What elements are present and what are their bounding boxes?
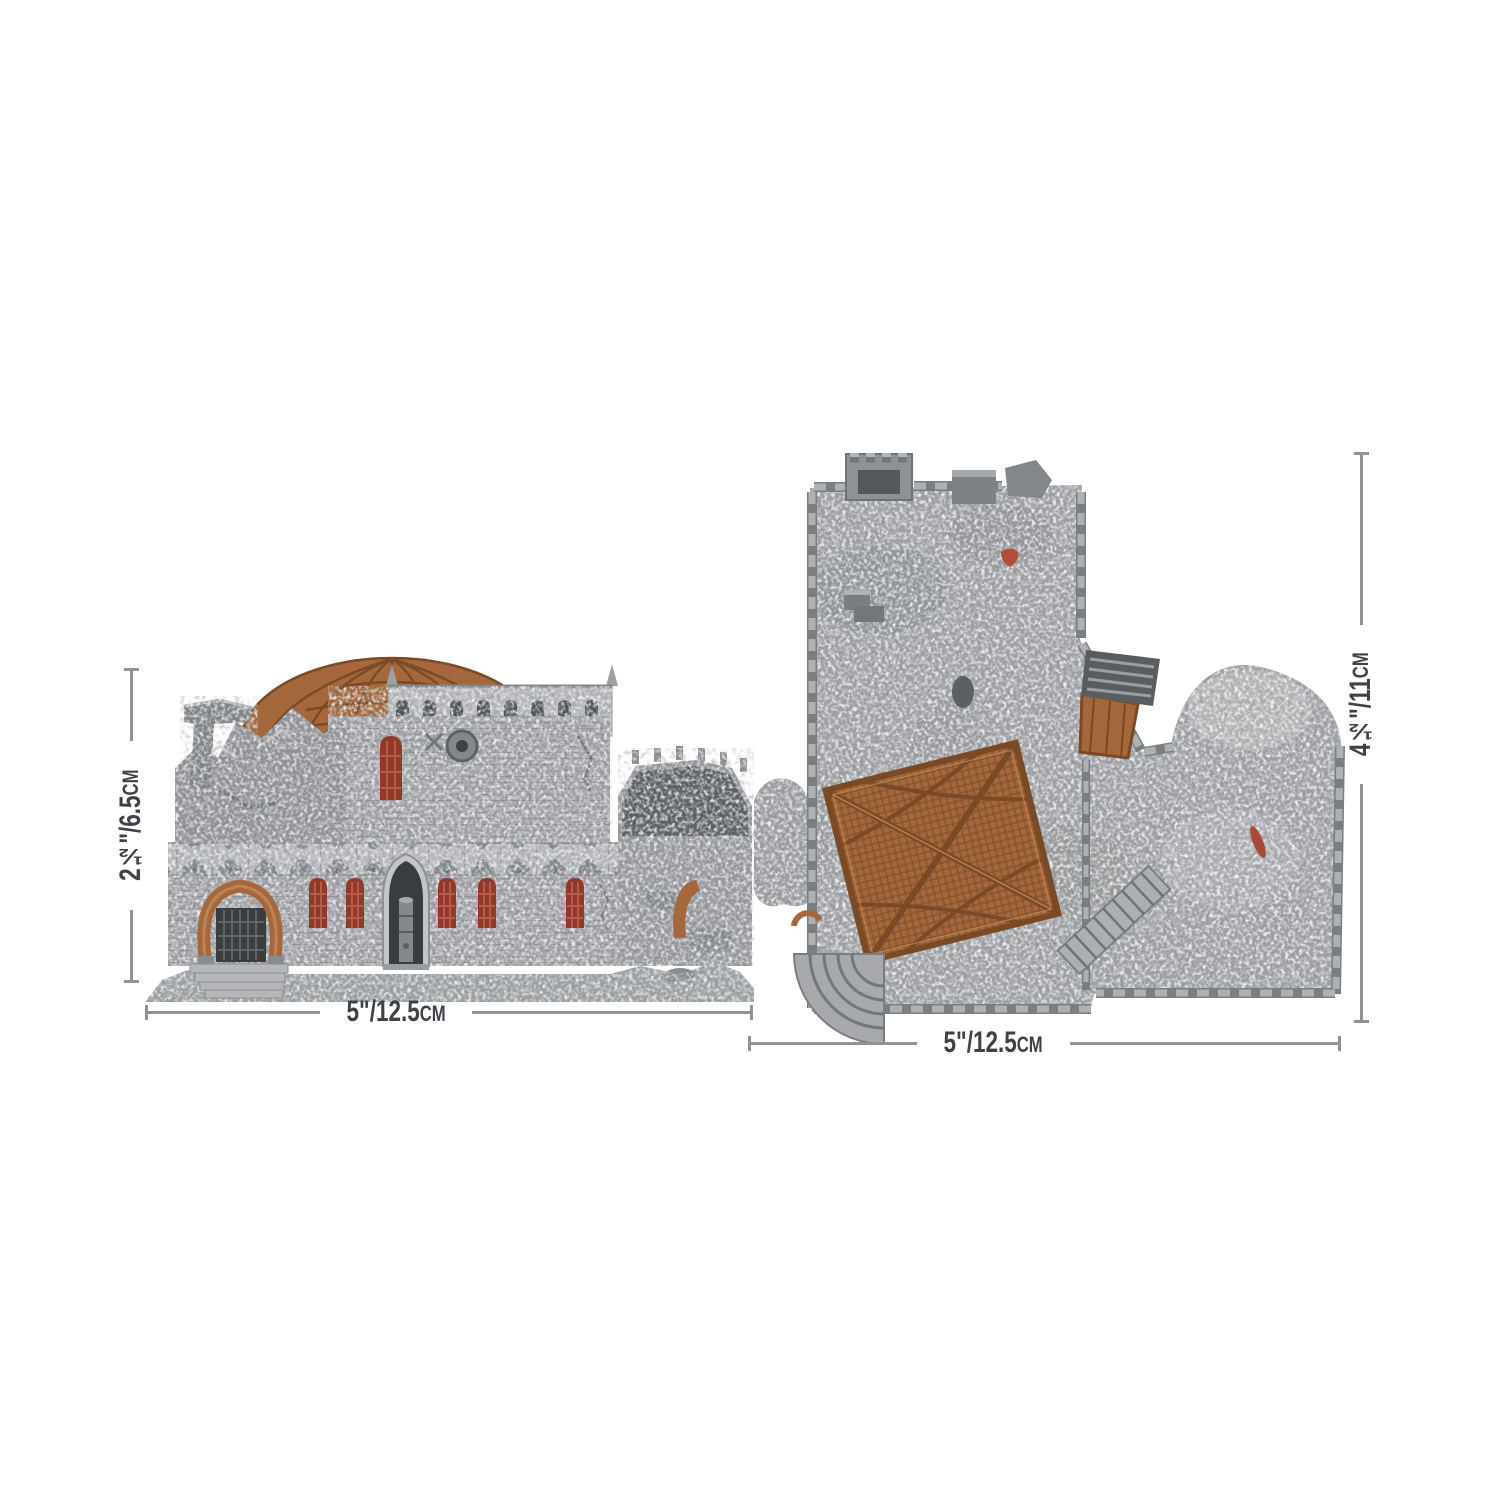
dimension-label: 5"/12.5cm (944, 1028, 1043, 1058)
dimension-cap (124, 980, 139, 983)
vault-wedge-fragment (1080, 694, 1138, 758)
dimension-line (472, 1011, 750, 1014)
dimension-line (130, 910, 133, 980)
dimension-left-height: 2½"/6.5cm (121, 668, 141, 983)
dimension-right-height: 4½"/11cm (1351, 452, 1371, 1023)
porthole (447, 731, 477, 761)
dimension-line (1360, 455, 1363, 625)
dimension-cap (1338, 1036, 1341, 1051)
upper-red-window (380, 736, 402, 800)
ruined-domed-building-side-view-image (140, 650, 760, 1010)
corner-turret (846, 454, 912, 500)
broken-masonry (1005, 460, 1052, 498)
dimension-cap (750, 1005, 753, 1020)
ruined-building-top-view-image (750, 440, 1350, 1050)
main-doorway (383, 854, 429, 970)
floor-hole (952, 676, 974, 708)
dimension-right-width: 5"/12.5cm (748, 1033, 1341, 1053)
top-view-figure (750, 440, 1350, 1050)
entry-steps (190, 964, 288, 998)
dimension-label: 4½"/11cm (1346, 652, 1376, 756)
product-dimensions-page: { "page": { "background": "#ffffff" }, "… (0, 0, 1500, 1500)
dimension-cap (1354, 1020, 1369, 1023)
upper-staircase (1081, 650, 1160, 706)
dimension-label: 5"/12.5cm (347, 997, 446, 1027)
wall-block (952, 470, 996, 504)
dimension-line (1070, 1042, 1338, 1045)
dimension-label: 2½"/6.5cm (116, 770, 146, 881)
dimension-line (1360, 784, 1363, 1020)
curved-entry-steps (794, 954, 884, 1044)
side-view-figure (140, 650, 760, 1010)
dimension-line (148, 1011, 320, 1014)
dimension-line (130, 671, 133, 741)
dimension-line (751, 1042, 917, 1045)
dimension-left-width: 5"/12.5cm (145, 1002, 753, 1022)
